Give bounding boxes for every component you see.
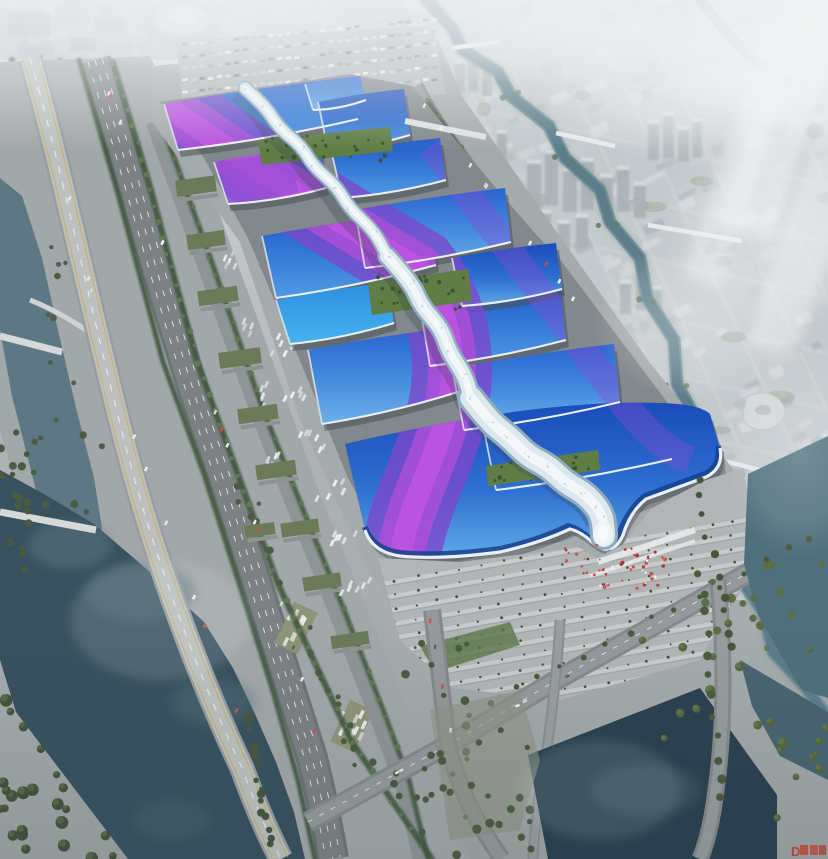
svg-text:D: D — [791, 844, 800, 859]
